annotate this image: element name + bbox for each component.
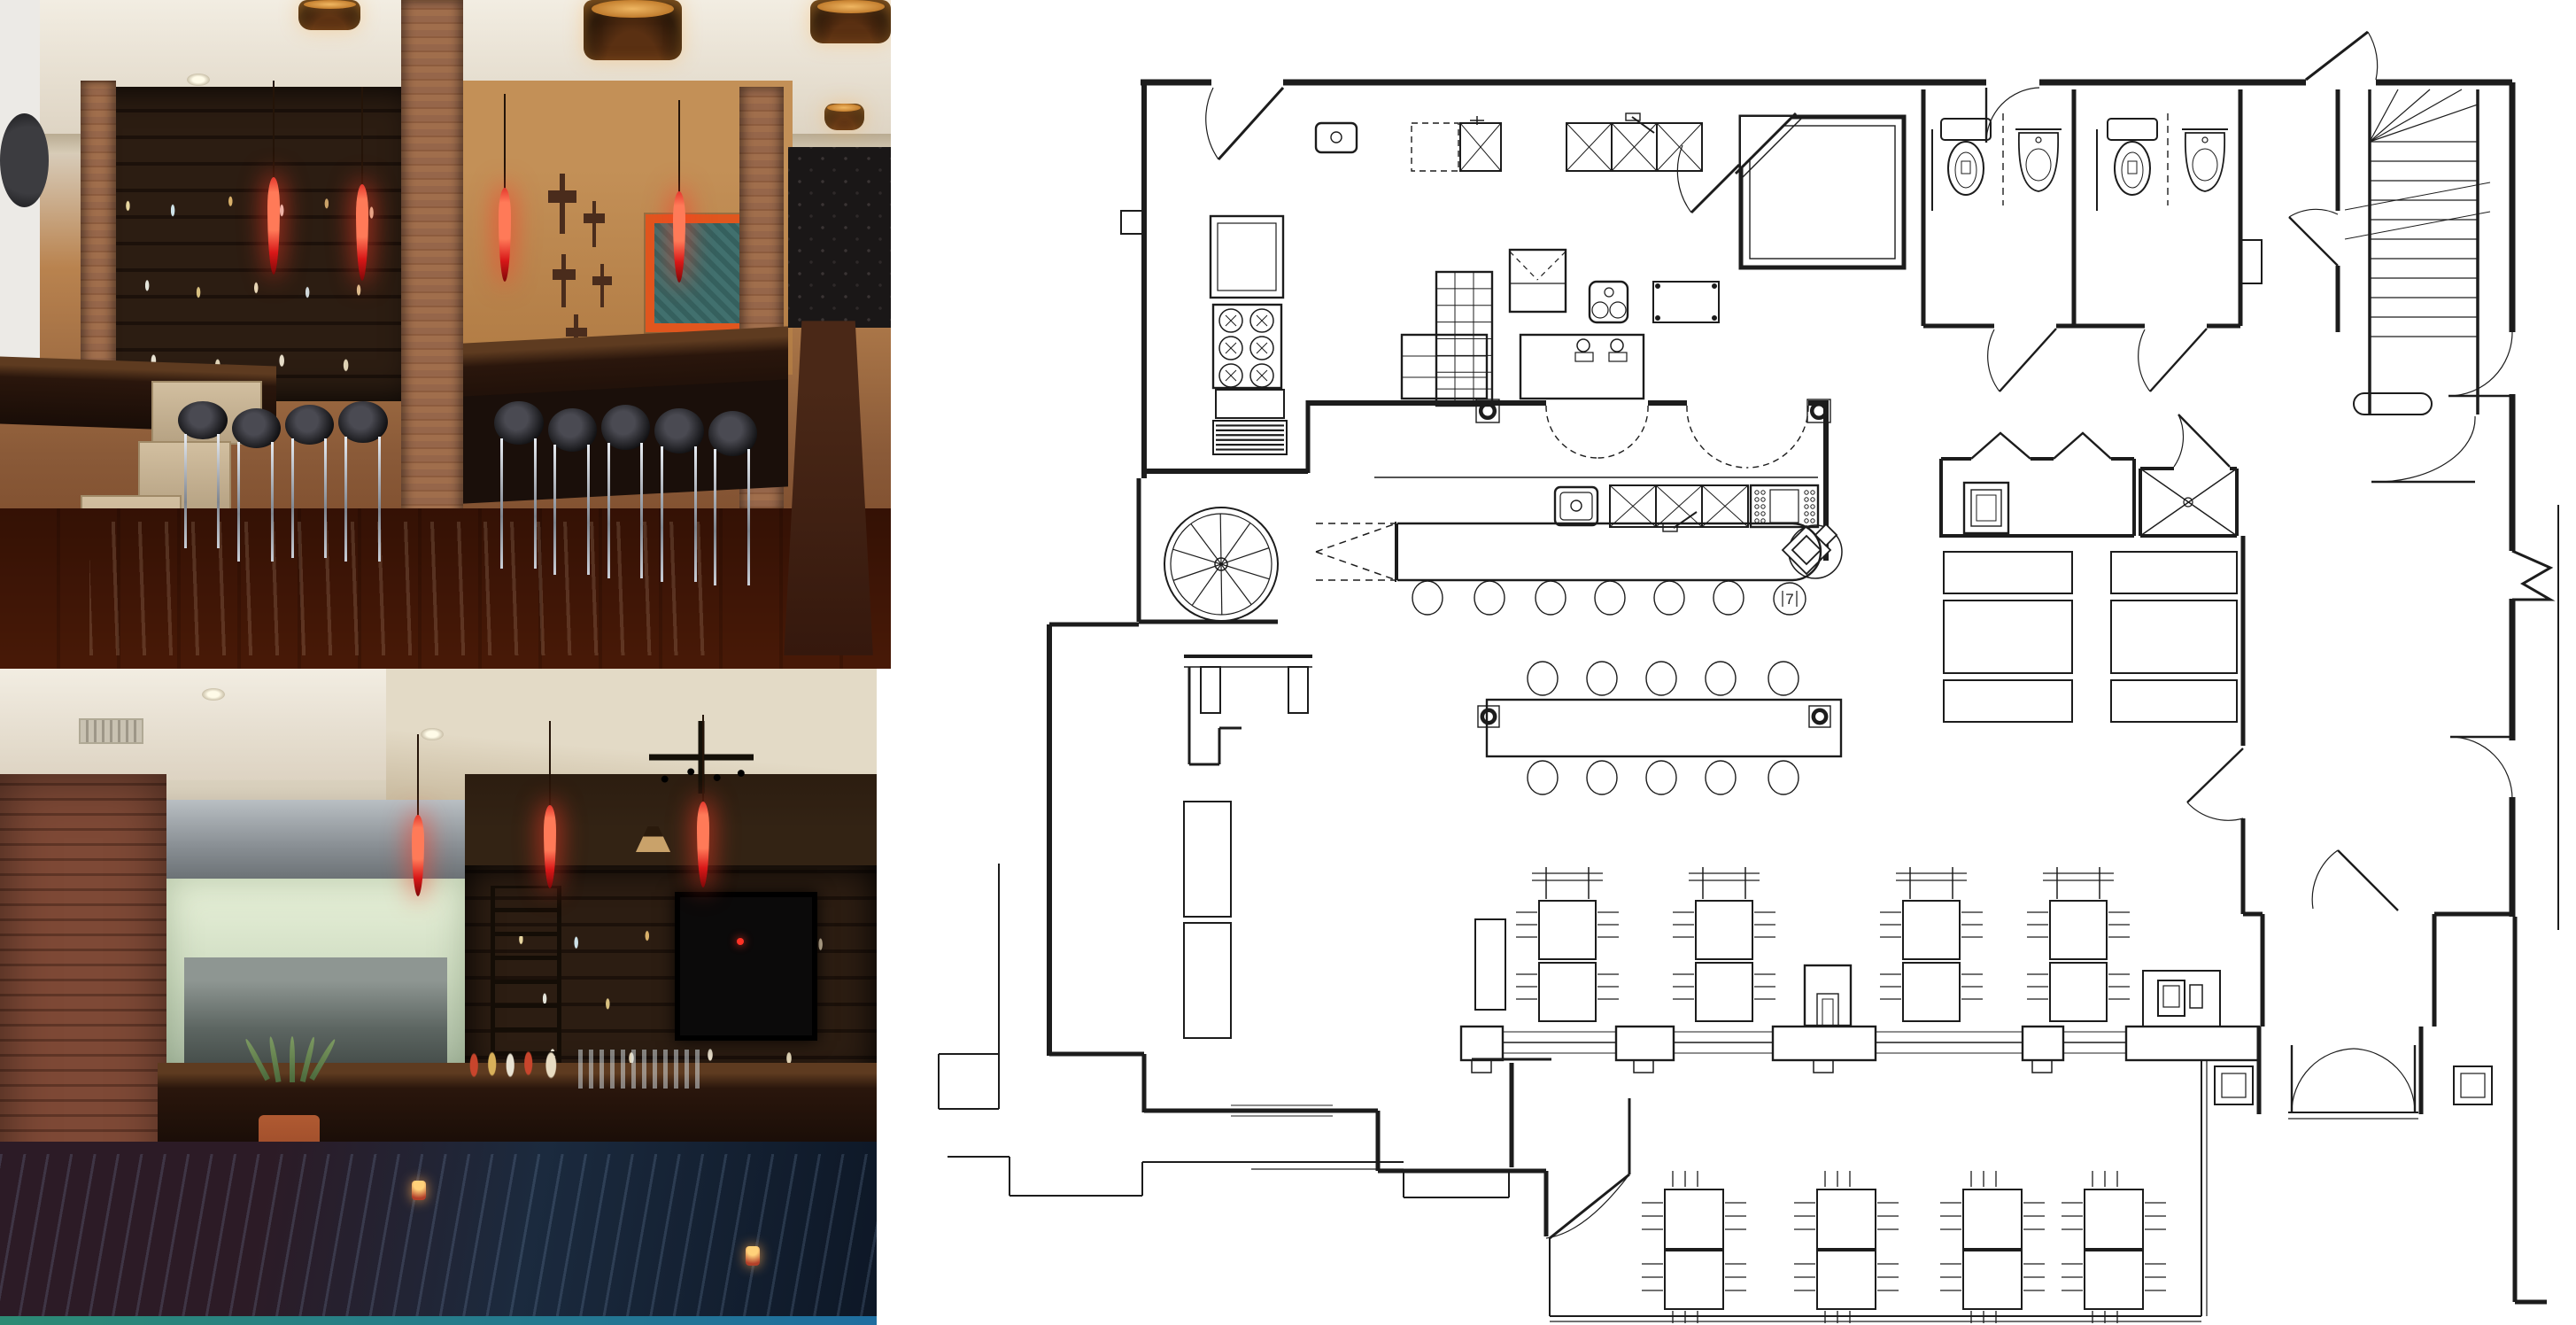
floor-plan-panel [891,0,2576,1325]
barstool [601,405,650,578]
barstool [708,411,757,585]
red-pendant-light-icon [356,87,368,307]
red-pendant-light-icon [697,715,709,911]
framed-artwork [646,214,748,332]
air-vent-icon [79,718,143,745]
cross-wall-art-icon [584,201,605,248]
red-pendant-light-icon [412,734,424,918]
red-pendant-light-icon [673,100,685,307]
drum-pendant-lamp-icon [824,104,864,130]
glassware [578,1050,701,1089]
barstool [232,408,281,562]
barstool [494,401,543,569]
barstool [654,408,703,582]
photo-bottom-strip [0,1316,877,1325]
tv-standby-dot [737,938,744,945]
votive-candle-icon [412,1181,426,1200]
drum-pendant-lamp-icon [584,0,682,60]
cross-wall-art-icon [553,254,576,307]
cross-wall-art-icon [592,264,612,307]
brick-column [401,0,463,569]
recessed-light-icon [202,688,225,701]
patterned-wallpaper [788,147,891,328]
photo-bar-dining-room [0,0,891,669]
photo-bar-kitchen-pass [0,669,877,1325]
votive-candle-icon [746,1246,760,1266]
barstool [285,405,334,559]
screenshot-canvas: 7 [0,0,2576,1325]
potted-plant-leaves [245,1036,333,1121]
wood-chair [784,321,873,655]
red-pendant-light-icon [499,94,511,308]
cross-wall-art-icon [548,174,576,234]
tv-screen [675,892,817,1041]
barstool [548,408,597,576]
drum-pendant-lamp-icon [298,0,360,30]
wall-clock [0,113,49,207]
red-pendant-light-icon [267,81,280,301]
condiment-bottles [465,1030,579,1089]
drum-pendant-lamp-icon [810,0,891,43]
counter-reflection [0,1154,877,1325]
barstool [338,401,387,562]
red-pendant-light-icon [544,721,556,911]
barstool [178,401,227,548]
